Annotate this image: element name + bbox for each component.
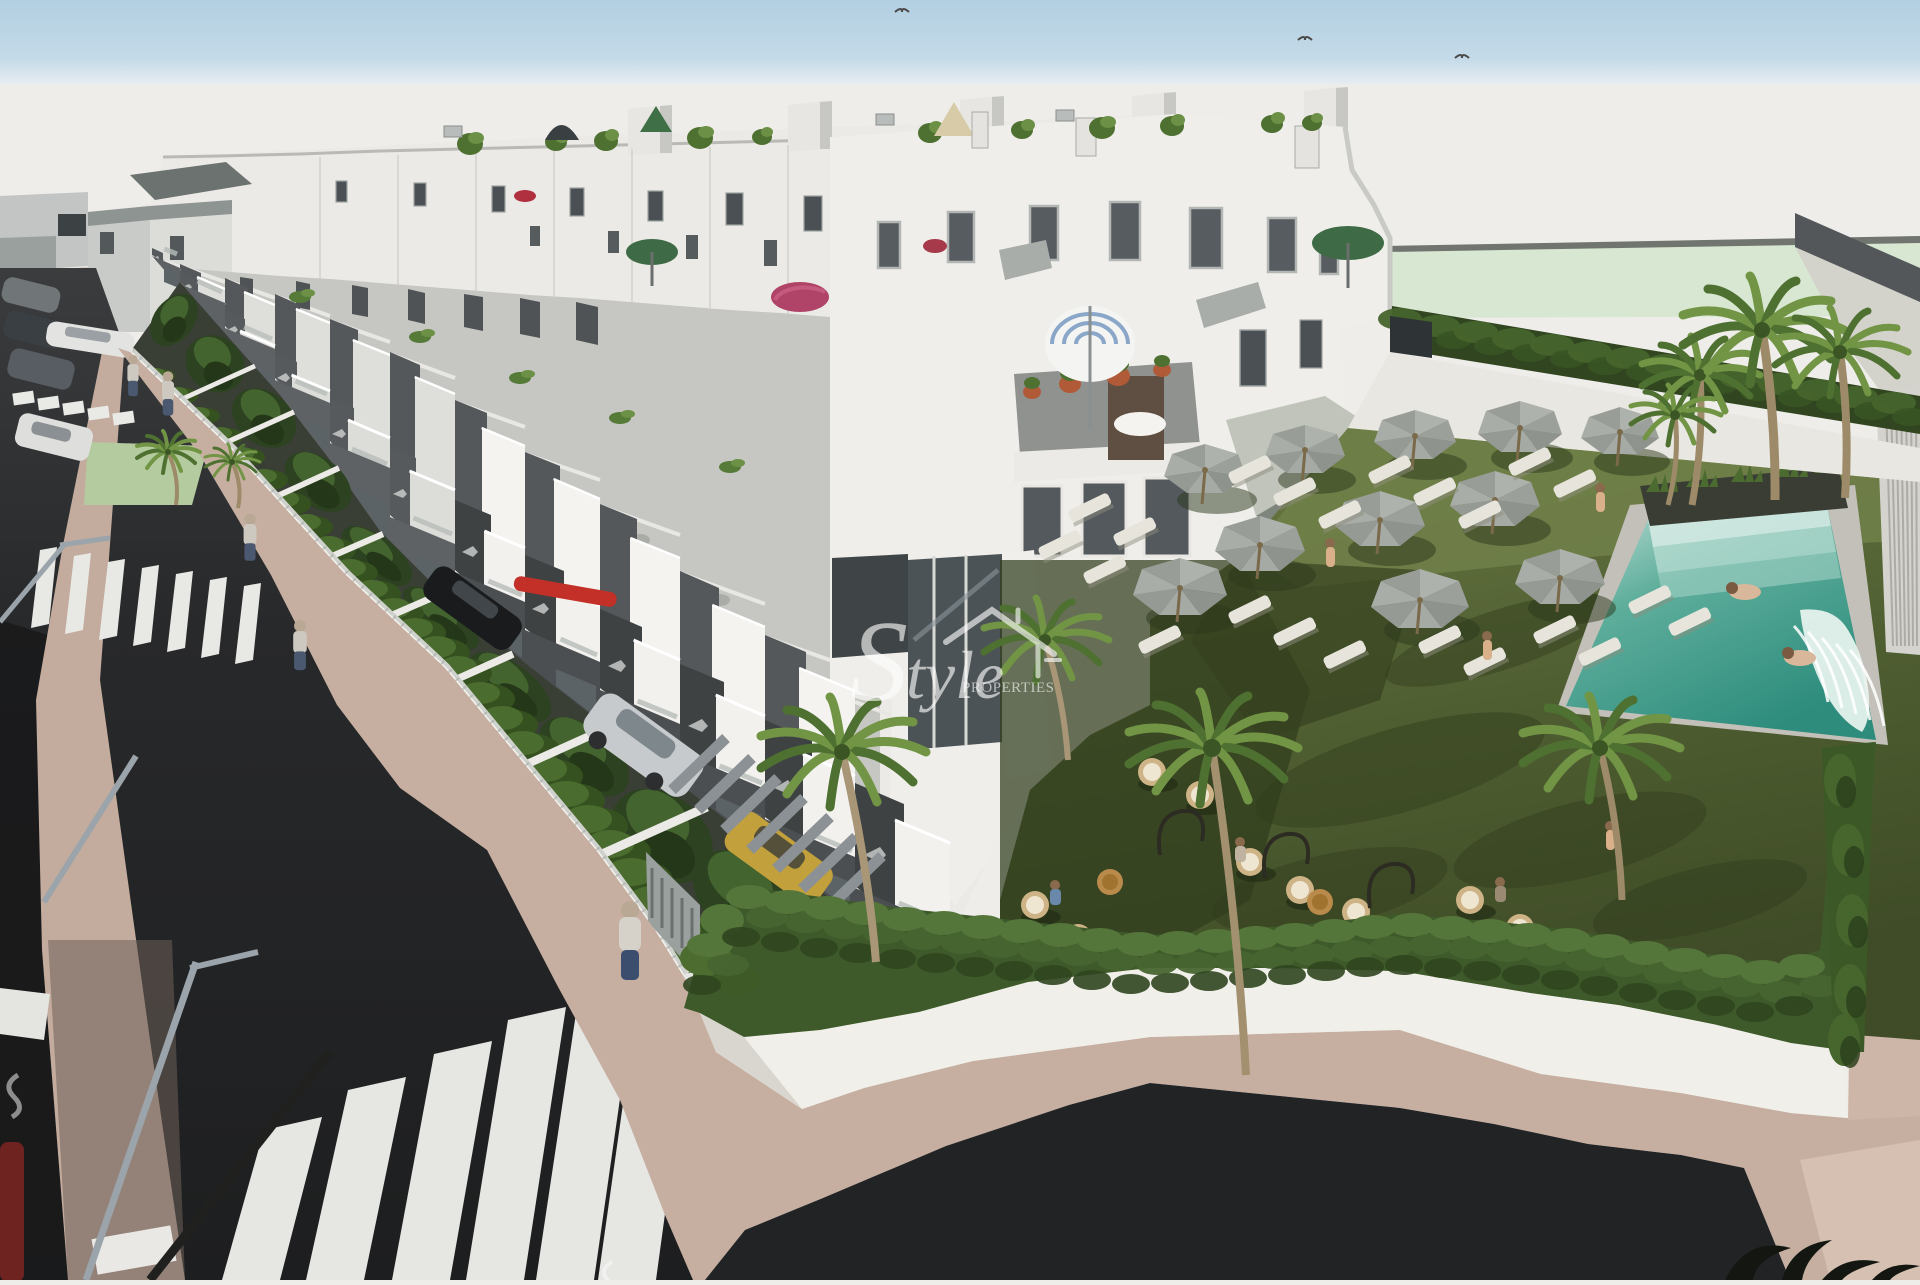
svg-text:S: S: [850, 598, 908, 726]
svg-text:tyle: tyle: [906, 637, 1004, 713]
svg-text:PROPERTIES: PROPERTIES: [962, 680, 1054, 696]
